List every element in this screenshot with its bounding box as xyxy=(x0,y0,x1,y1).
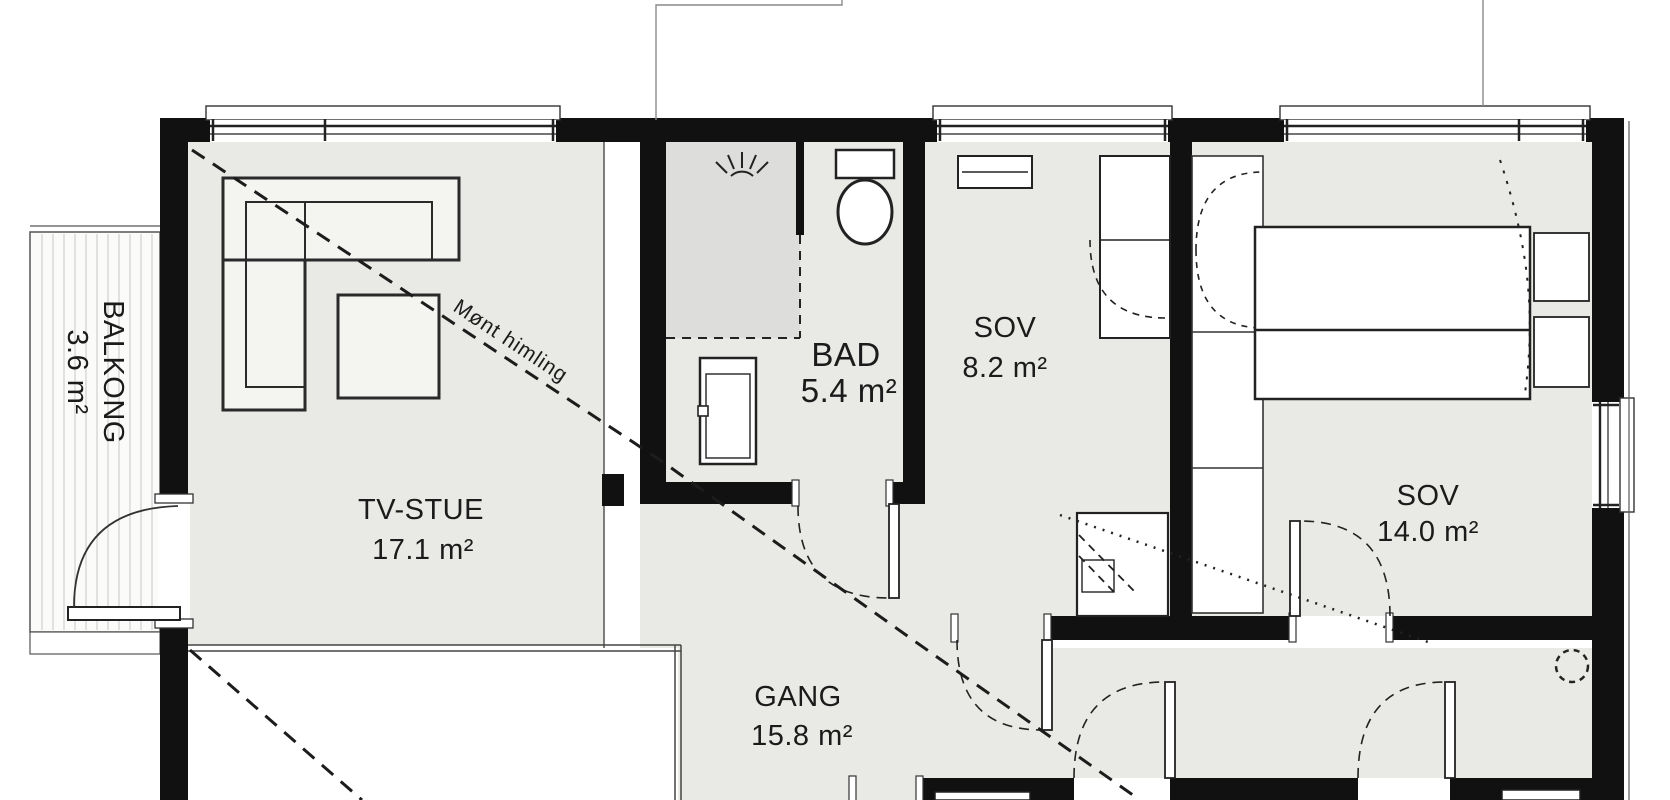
wall-top-3 xyxy=(1168,118,1284,142)
bad-shower-zone xyxy=(666,142,800,338)
room-name-bad: BAD xyxy=(811,336,880,373)
room-name-sov2: SOV xyxy=(1397,480,1460,512)
wall-left-upper xyxy=(160,118,188,498)
wall-bedrooms-bottom-1 xyxy=(1047,616,1295,640)
faucet xyxy=(698,406,708,416)
bed-double-pillow-2 xyxy=(1534,317,1589,387)
sov1-door-leaf xyxy=(1042,640,1052,730)
room-name-balkong: BALKONG xyxy=(97,300,129,444)
wall-tvstue-bad xyxy=(640,142,666,482)
leader-lines xyxy=(656,0,1483,120)
sov1-door-jamb-right xyxy=(1044,614,1051,642)
room-area-bad: 5.4 m² xyxy=(801,372,898,409)
gang-floor-sov1-door xyxy=(925,616,1047,656)
shower-partition xyxy=(796,142,804,235)
room-area-sov2: 14.0 m² xyxy=(1377,516,1479,548)
balcony-door-jamb-top xyxy=(155,494,193,503)
wall-bedrooms-bottom-2 xyxy=(1390,616,1592,640)
room-area-sov1: 8.2 m² xyxy=(962,352,1047,384)
window-right xyxy=(1592,398,1634,512)
bad-door-jamb-left xyxy=(792,480,799,506)
lower-room-floor xyxy=(188,648,678,800)
wall-bad-sov1 xyxy=(903,142,925,504)
cut-room-2 xyxy=(1502,790,1580,800)
sov1-door-jamb-left xyxy=(951,614,958,642)
room-area-tvstue: 17.1 m² xyxy=(372,534,474,566)
wall-post-shaft xyxy=(602,474,624,506)
window-sov2 xyxy=(1280,106,1590,142)
bottom-opening-jamb-2 xyxy=(916,776,923,800)
floor-plan-page: BALKONG 3.6 m² xyxy=(0,0,1670,800)
room-name-gang: GANG xyxy=(754,681,841,713)
coffee-table xyxy=(338,295,439,398)
wardrobe-sov1 xyxy=(1090,156,1170,338)
wall-right-lower xyxy=(1592,508,1624,800)
bad-door-jamb-right xyxy=(886,480,893,506)
room-name-sov1: SOV xyxy=(974,312,1037,344)
balcony-fascia xyxy=(30,632,160,654)
cut-room-1 xyxy=(935,792,1030,800)
leader-line-1 xyxy=(656,0,842,120)
sov2-door-leaf xyxy=(1290,521,1300,616)
balcony: BALKONG 3.6 m² xyxy=(30,226,160,654)
sov2-door-jamb-right xyxy=(1386,613,1393,642)
wall-bottom-2 xyxy=(1170,778,1358,800)
vanity-sink xyxy=(698,358,756,464)
bad-door-leaf xyxy=(889,504,899,598)
balcony-door-leaf xyxy=(68,607,180,620)
sov2-door-jamb-left xyxy=(1289,613,1296,642)
shaft-strip xyxy=(604,142,640,648)
wall-right-upper xyxy=(1592,118,1624,402)
bed-single xyxy=(1077,513,1168,616)
toilet xyxy=(836,150,894,244)
wall-sov1-sov2 xyxy=(1170,142,1192,640)
balcony-door-opening xyxy=(158,498,190,624)
bottom-door-2-opening xyxy=(1358,778,1450,800)
floor-plan-svg: BALKONG 3.6 m² xyxy=(0,0,1670,800)
bottom-door-2-leaf xyxy=(1445,682,1455,778)
room-area-gang: 15.8 m² xyxy=(751,720,853,752)
closet-strip xyxy=(1192,156,1263,613)
nightstand xyxy=(958,156,1032,188)
room-name-tvstue: TV-STUE xyxy=(358,494,484,526)
bottom-opening-left xyxy=(852,778,920,800)
bottom-opening-jamb-1 xyxy=(849,776,856,800)
wall-top-2 xyxy=(556,118,937,142)
room-area-balkong: 3.6 m² xyxy=(61,329,93,414)
bed-double-pillow-1 xyxy=(1534,233,1589,301)
bottom-door-1-leaf xyxy=(1165,682,1175,778)
window-sov1 xyxy=(933,106,1172,142)
tvstue-furniture xyxy=(223,178,459,410)
wall-left-lower xyxy=(160,624,188,800)
window-tvstue xyxy=(206,106,560,142)
